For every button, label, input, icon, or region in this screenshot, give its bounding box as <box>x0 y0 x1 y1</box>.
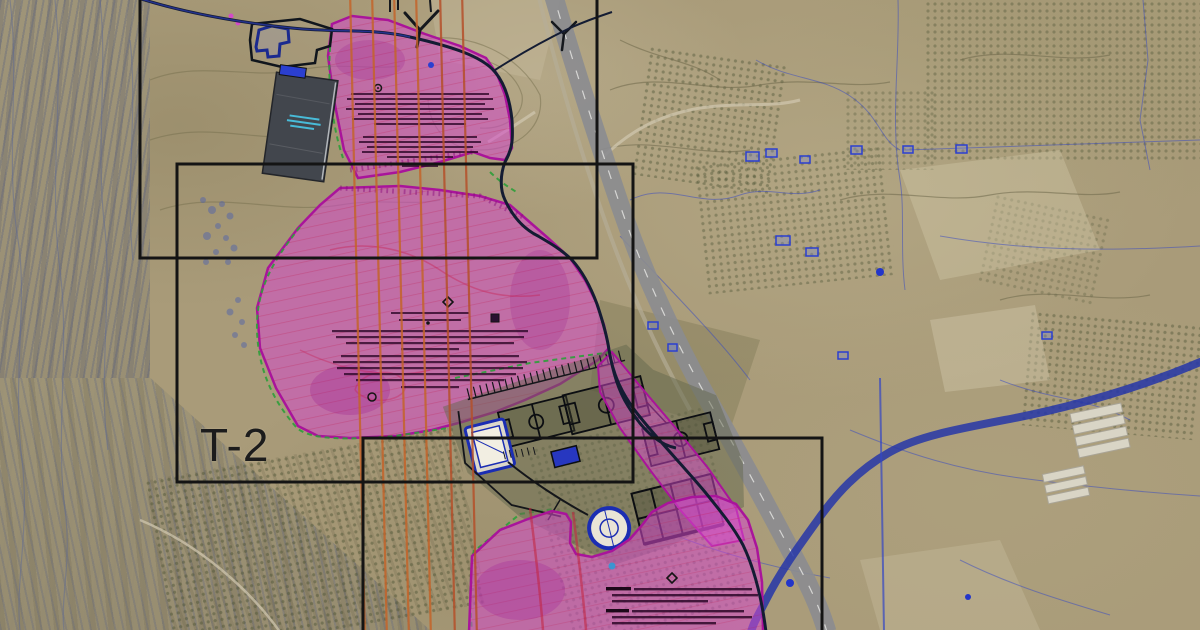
top-edge-ticks <box>390 0 431 12</box>
tree-speckles <box>200 197 247 348</box>
plan-overlay <box>0 0 1200 630</box>
terrain-contours-margin <box>10 0 133 630</box>
frame-label-t2: T-2 <box>200 418 269 472</box>
map-canvas: T-2 <box>0 0 1200 630</box>
